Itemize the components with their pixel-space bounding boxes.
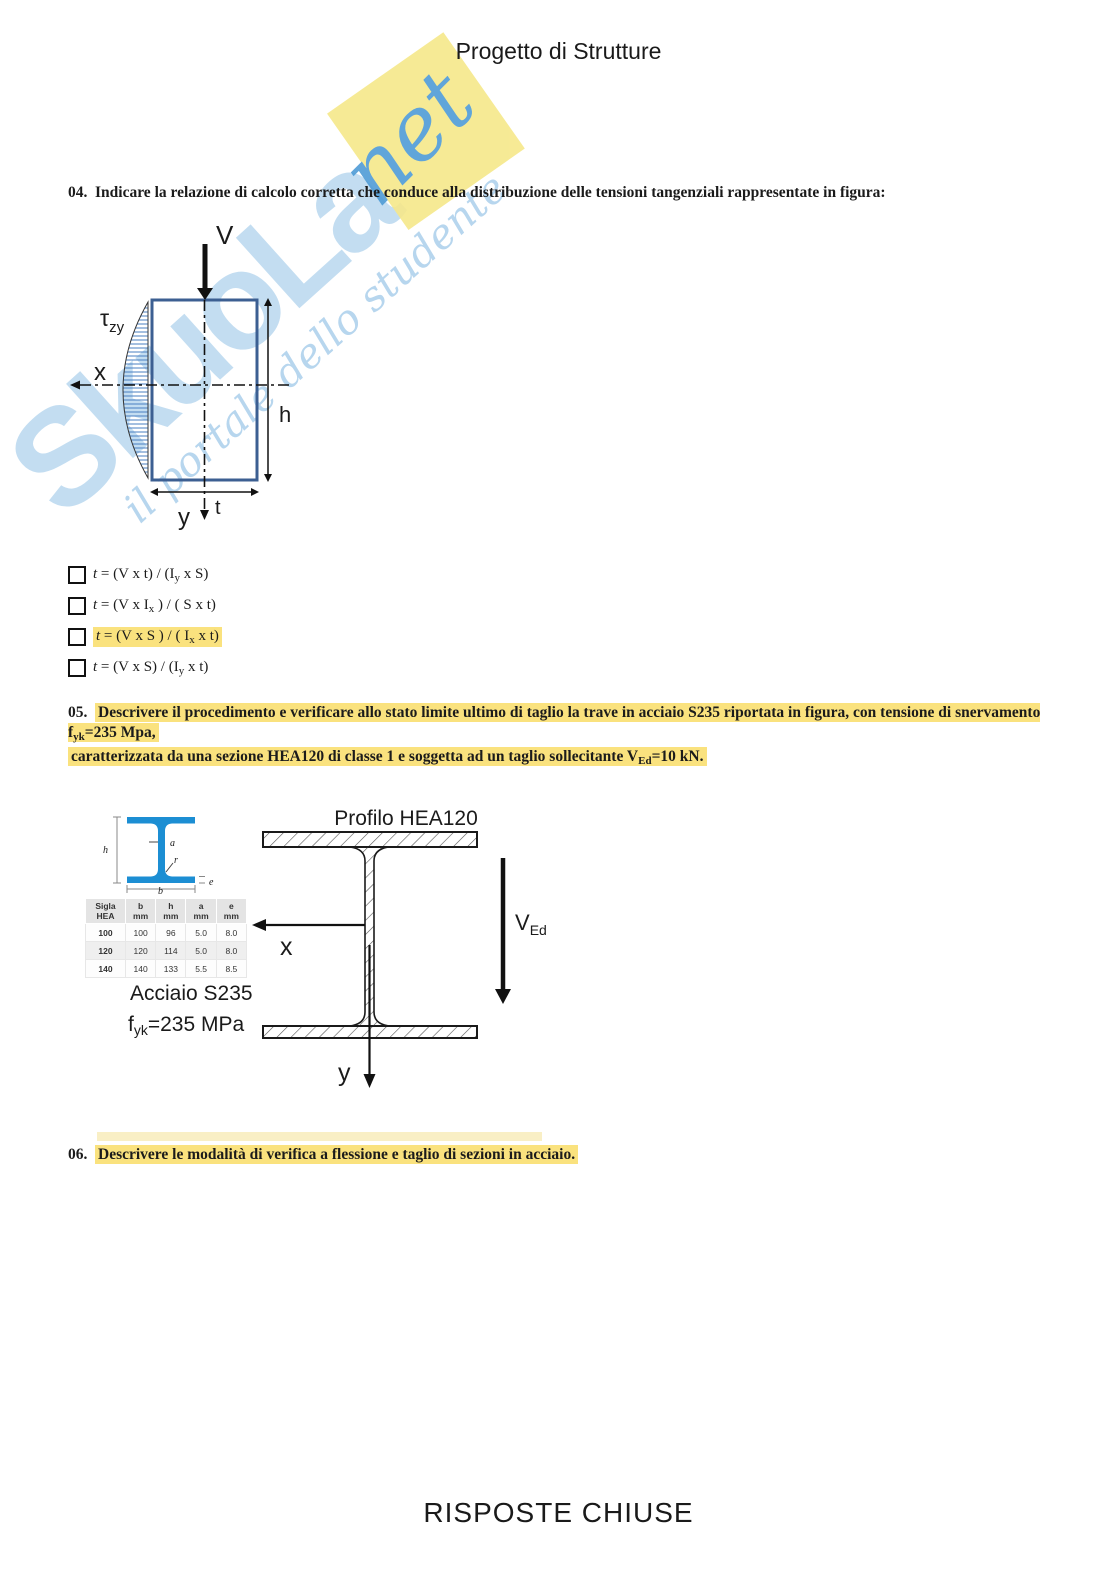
question-06: 06.Descrivere le modalità di verifica a … xyxy=(68,1145,1068,1165)
table-cell: 5.5 xyxy=(186,960,216,978)
question-05-number: 05. xyxy=(68,703,95,723)
tau-zy-label: τzy xyxy=(100,305,125,336)
t-dim-arrow-left xyxy=(150,488,158,496)
answer-option-2: t = (V x Ix ) / ( S x t) xyxy=(68,595,216,617)
highlight-strip xyxy=(97,1132,542,1141)
sketch-fillet xyxy=(151,869,158,877)
answer-option-3: t = (V x S ) / ( Ix x t) xyxy=(68,626,222,648)
table-cell: 100 xyxy=(86,924,126,942)
option-formula-4: t = (V x S) / (Iy x t) xyxy=(93,659,208,677)
x-axis-arrowhead xyxy=(70,381,80,390)
h-dim-arrow-bottom xyxy=(264,474,272,482)
v-load-label: V xyxy=(216,222,234,250)
profile-top-flange xyxy=(263,832,477,847)
table-cell: 114 xyxy=(156,942,186,960)
option-formula-3-highlighted: t = (V x S ) / ( Ix x t) xyxy=(93,627,222,647)
table-cell: 140 xyxy=(125,960,155,978)
table-header-e: emm xyxy=(216,899,246,924)
h-dimension-label: h xyxy=(279,402,291,427)
sketch-bottom-flange xyxy=(127,877,195,884)
profile-title: Profilo HEA120 xyxy=(334,807,478,830)
question-05-line2: caratterizzata da una sezione HEA120 di … xyxy=(68,747,707,766)
answer-checkbox-1[interactable] xyxy=(68,566,86,584)
footer-section-title: RISPOSTE CHIUSE xyxy=(0,1497,1117,1529)
shear-distribution-figure: V y x h t τzy xyxy=(68,222,318,532)
t-dimension-label: t xyxy=(215,497,221,519)
ved-arrowhead xyxy=(495,989,511,1004)
table-cell: 5.0 xyxy=(186,942,216,960)
table-header-b: bmm xyxy=(125,899,155,924)
table-header-h: hmm xyxy=(156,899,186,924)
steel-grade-label: Acciaio S235 xyxy=(130,982,253,1006)
hea-table-header-row: SiglaHEA bmm hmm amm emm xyxy=(86,899,247,924)
table-cell: 5.0 xyxy=(186,924,216,942)
document-page: SkuoLa net il portale dello studente Pro… xyxy=(0,0,1117,1579)
hea-table-row-140: 140 140 133 5.5 8.5 xyxy=(86,960,247,978)
question-06-number: 06. xyxy=(68,1145,95,1165)
sketch-a-label: a xyxy=(170,838,175,849)
hea-table-row-120: 120 120 114 5.0 8.0 xyxy=(86,942,247,960)
table-header-a: amm xyxy=(186,899,216,924)
y-axis-label: y xyxy=(178,504,190,531)
table-cell: 8.0 xyxy=(216,942,246,960)
hea-table: SiglaHEA bmm hmm amm emm 100 100 96 5.0 … xyxy=(85,898,247,978)
sketch-e-label: e xyxy=(209,877,214,888)
question-05: 05.Descrivere il procedimento e verifica… xyxy=(68,703,1073,771)
profile-x-label: x xyxy=(280,933,293,961)
table-header-sigla: SiglaHEA xyxy=(86,899,126,924)
sketch-fillet xyxy=(151,824,158,832)
hea-table-row-100: 100 100 96 5.0 8.0 xyxy=(86,924,247,942)
hea-profile-sketch: h a r b e xyxy=(95,793,220,896)
table-cell: 96 xyxy=(156,924,186,942)
r-pointer-line xyxy=(166,863,173,872)
profile-x-arrowhead xyxy=(252,919,266,931)
sketch-r-label: r xyxy=(174,855,178,866)
table-cell: 120 xyxy=(86,942,126,960)
table-cell: 8.0 xyxy=(216,924,246,942)
page-title: Progetto di Strutture xyxy=(0,38,1117,65)
question-05-line1: Descrivere il procedimento e verificare … xyxy=(68,703,1040,742)
sketch-web xyxy=(158,823,165,877)
shear-parabola xyxy=(123,302,148,478)
sketch-fillet xyxy=(165,824,172,832)
profile-y-label: y xyxy=(338,1059,351,1087)
h-dim-arrow-top xyxy=(264,298,272,306)
sketch-h-label: h xyxy=(103,845,108,856)
y-axis-arrowhead xyxy=(200,510,209,520)
question-06-text: Descrivere le modalità di verifica a fle… xyxy=(95,1145,578,1164)
question-04-number: 04. xyxy=(68,183,95,203)
answer-checkbox-4[interactable] xyxy=(68,659,86,677)
table-cell: 8.5 xyxy=(216,960,246,978)
table-cell: 140 xyxy=(86,960,126,978)
option-formula-2: t = (V x Ix ) / ( S x t) xyxy=(93,597,216,615)
question-04-text: Indicare la relazione di calcolo corrett… xyxy=(95,184,886,201)
hea120-profile-figure: Profilo HEA120 x y VEd xyxy=(250,795,575,1095)
v-load-arrowhead xyxy=(197,288,213,300)
sketch-fillet xyxy=(165,869,172,877)
answer-checkbox-3[interactable] xyxy=(68,628,86,646)
table-cell: 133 xyxy=(156,960,186,978)
answer-option-4: t = (V x S) / (Iy x t) xyxy=(68,657,208,679)
answer-checkbox-2[interactable] xyxy=(68,597,86,615)
question-04: 04.Indicare la relazione di calcolo corr… xyxy=(68,183,1068,203)
x-axis-label: x xyxy=(94,359,106,386)
ved-label: VEd xyxy=(515,910,547,938)
fyk-label: fyk=235 MPa xyxy=(128,1013,244,1038)
sketch-top-flange xyxy=(127,817,195,824)
t-dim-arrow-right xyxy=(251,488,259,496)
table-cell: 100 xyxy=(125,924,155,942)
sketch-b-label: b xyxy=(158,886,163,896)
table-cell: 120 xyxy=(125,942,155,960)
answer-option-1: t = (V x t) / (Iy x S) xyxy=(68,564,208,586)
profile-y-arrowhead xyxy=(364,1074,376,1088)
option-formula-1: t = (V x t) / (Iy x S) xyxy=(93,566,208,584)
